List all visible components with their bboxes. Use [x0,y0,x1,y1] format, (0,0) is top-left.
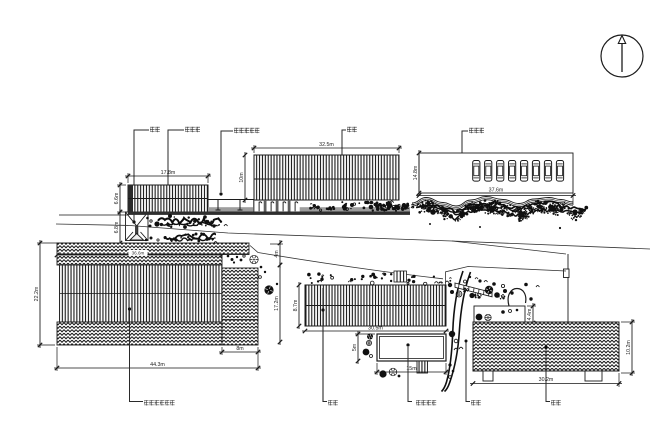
svg-text:17.8m: 17.8m [161,170,176,176]
svg-text:5m: 5m [352,343,358,351]
svg-text:17.2m: 17.2m [274,296,280,311]
svg-text:8m: 8m [236,346,244,352]
svg-text:14.8m: 14.8m [413,165,419,180]
svg-text:6.6m: 6.6m [114,192,120,204]
svg-text:10.2m: 10.2m [626,340,632,355]
svg-text:6.8m: 6.8m [114,221,120,233]
svg-text:4.4m: 4.4m [527,308,533,320]
svg-text:36.6m: 36.6m [132,251,145,256]
svg-text:30.5m: 30.5m [368,325,383,331]
svg-text:44.3m: 44.3m [150,362,165,368]
svg-text:4m: 4m [274,250,280,258]
svg-text:8.7m: 8.7m [293,299,299,311]
svg-text:37.6m: 37.6m [489,188,504,194]
svg-text:22.2m: 22.2m [34,286,40,301]
svg-text:10m: 10m [239,172,245,183]
svg-text:32.5m: 32.5m [319,142,334,148]
